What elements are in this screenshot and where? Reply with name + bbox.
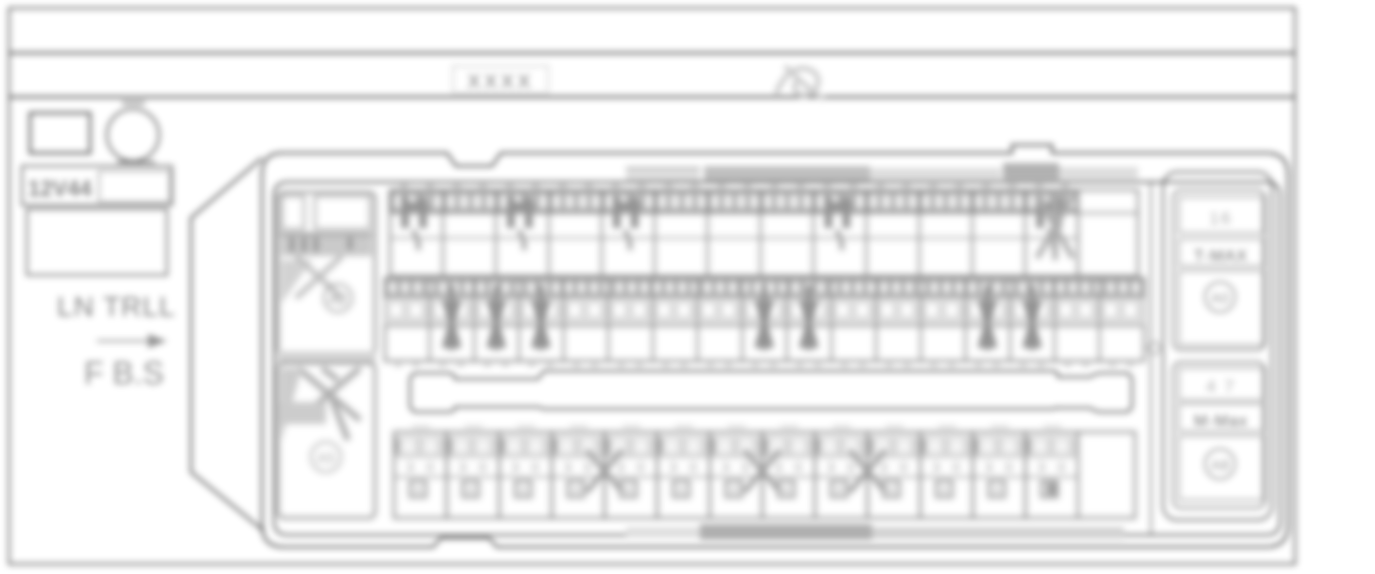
svg-text:U: U [887, 483, 896, 497]
svg-text:F B.S: F B.S [84, 355, 164, 391]
svg-text:0: 0 [637, 459, 645, 475]
svg-text:0: 0 [847, 459, 855, 475]
svg-text:M-Max: M-Max [1194, 413, 1248, 430]
svg-text:0: 0 [1058, 459, 1066, 475]
svg-text:4 7: 4 7 [1206, 377, 1236, 396]
svg-text:U: U [835, 483, 844, 497]
svg-text:U: U [414, 483, 423, 497]
svg-text:3: 3 [932, 459, 940, 475]
svg-text:T-MAX: T-MAX [1194, 248, 1248, 265]
svg-text:3: 3 [722, 459, 730, 475]
svg-text:0: 0 [584, 459, 592, 475]
svg-text:U: U [519, 483, 528, 497]
svg-text:0: 0 [742, 459, 750, 475]
svg-text:U: U [624, 483, 633, 497]
svg-text:0: 0 [689, 459, 697, 475]
svg-text:3: 3 [564, 459, 572, 475]
svg-text:LN TRLL: LN TRLL [57, 291, 176, 322]
svg-text:0: 0 [900, 459, 908, 475]
svg-text:U: U [940, 483, 949, 497]
svg-text:16: 16 [1210, 209, 1233, 228]
svg-text:U: U [992, 483, 1001, 497]
svg-text:3: 3 [985, 459, 993, 475]
svg-text:U: U [571, 483, 580, 497]
svg-text:3: 3 [511, 459, 519, 475]
svg-text:U: U [729, 483, 738, 497]
svg-text:3: 3 [669, 459, 677, 475]
svg-text:3: 3 [774, 459, 782, 475]
svg-text:A2: A2 [329, 291, 347, 308]
svg-text:A5: A5 [317, 450, 335, 467]
svg-text:3: 3 [459, 459, 467, 475]
svg-text:U: U [782, 483, 791, 497]
svg-text:0: 0 [531, 459, 539, 475]
svg-text:U: U [677, 483, 686, 497]
svg-text:0: 0 [426, 459, 434, 475]
svg-text:3: 3 [406, 459, 414, 475]
svg-text:3: 3 [1038, 459, 1046, 475]
svg-text:3: 3 [880, 459, 888, 475]
svg-text:3: 3 [617, 459, 625, 475]
svg-text:0: 0 [1005, 459, 1013, 475]
svg-text:3: 3 [827, 459, 835, 475]
svg-text:A8: A8 [1211, 457, 1229, 474]
svg-text:0: 0 [952, 459, 960, 475]
svg-text:12V44: 12V44 [28, 176, 92, 201]
svg-text:A0: A0 [1211, 290, 1229, 307]
svg-text:U: U [466, 483, 475, 497]
svg-text:0: 0 [479, 459, 487, 475]
svg-text:XXXX: XXXX [468, 72, 535, 93]
svg-text:0: 0 [794, 459, 802, 475]
